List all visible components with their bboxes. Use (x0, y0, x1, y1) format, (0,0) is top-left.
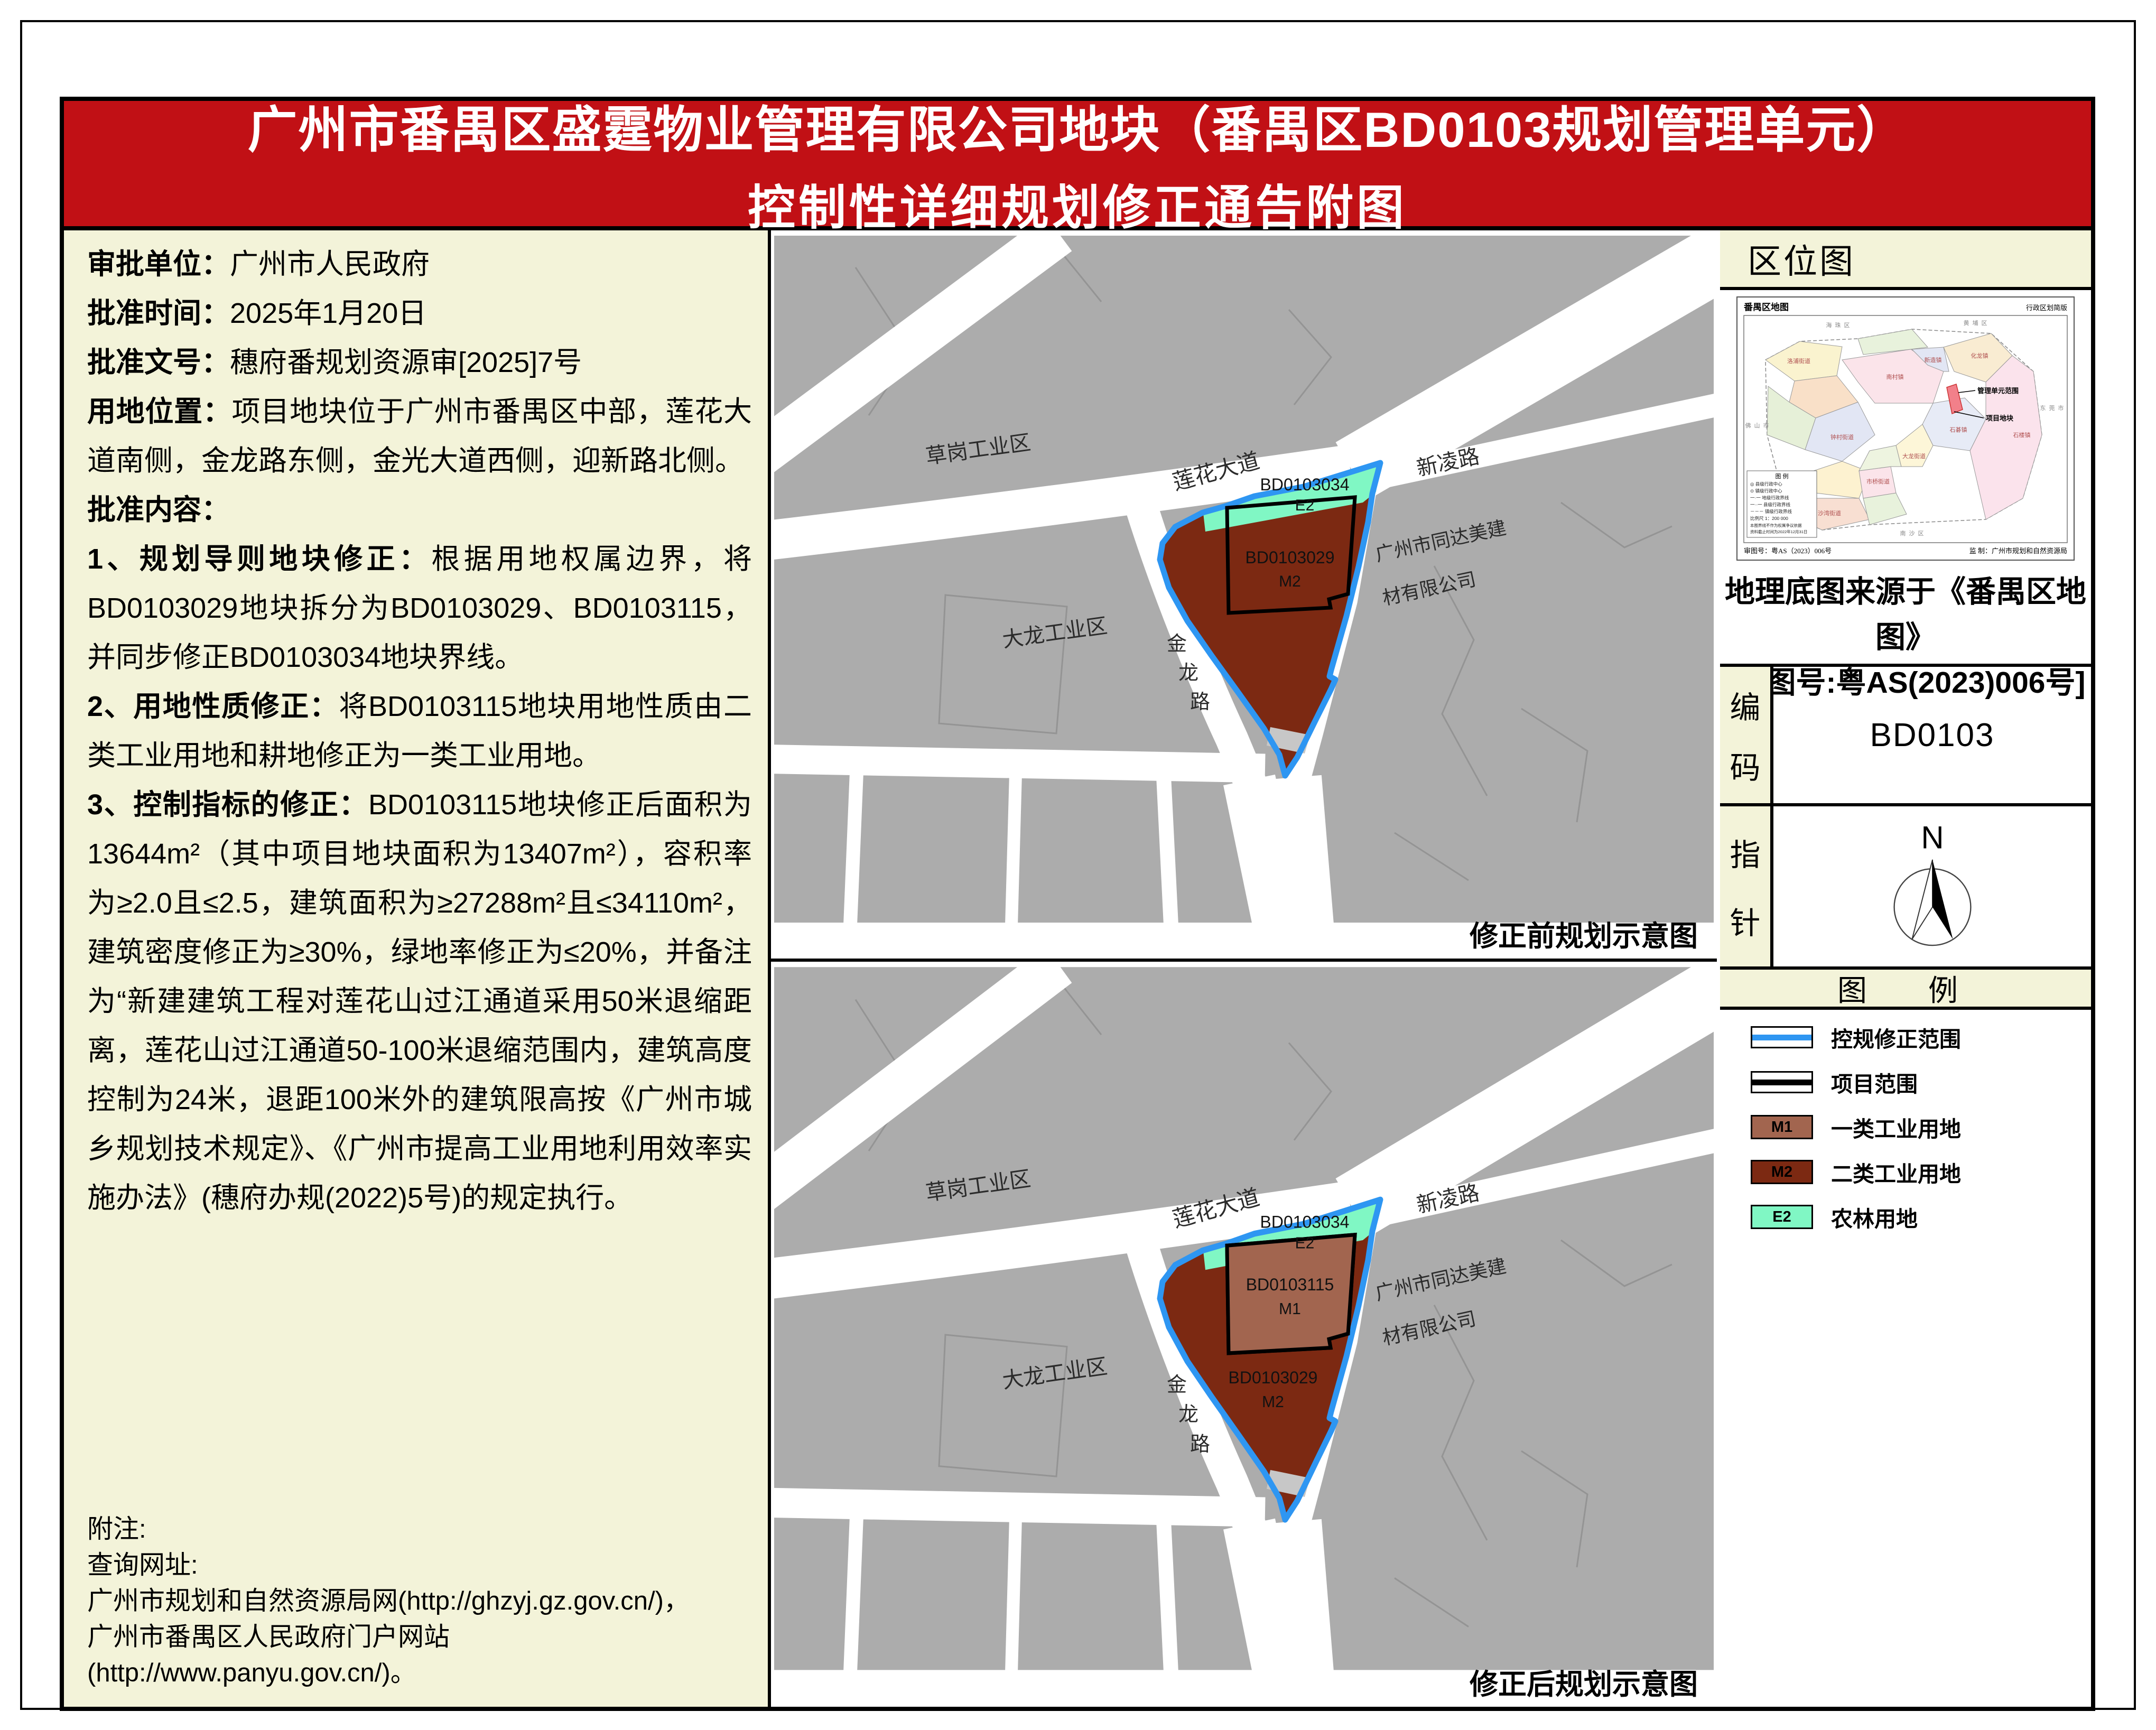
unit-code-section: 编 码 BD0103 (1720, 667, 2091, 806)
legend-item-project-scope: 项目范围 (1751, 1066, 2091, 1098)
north-arrow-icon: N (1874, 813, 1991, 961)
map-panels-column: 草岗工业区 大龙工业区 莲花大道 新凌路 金 龙 路 广州市同达美建 材有限公司 (771, 230, 1723, 1707)
location-map-section: 番禺区地图 行政区划简版 (1720, 290, 2091, 667)
note-line: 广州市规划和自然资源局网(http://ghzyj.gz.gov.cn/)， (87, 1583, 752, 1619)
svg-text:新造镇: 新造镇 (1925, 356, 1942, 364)
parcel-type-e2: E2 (1295, 1234, 1315, 1252)
blue-line-swatch-icon (1751, 1026, 1813, 1048)
panyu-district-inset-map: 番禺区地图 行政区划简版 (1736, 296, 2075, 561)
legend-item-e2: E2 农林用地 (1751, 1201, 2091, 1233)
map-after-revision: BD0103034 E2 BD0103115 M1 BD0103029 M2 修… (771, 962, 1717, 1707)
legend-item-revision-scope: 控规修正范围 (1751, 1021, 2091, 1053)
field-approval-doc: 批准文号：穗府番规划资源审[2025]7号 (87, 338, 752, 387)
svg-text:海珠区: 海珠区 (1826, 321, 1853, 329)
parcel-code-bd0103034: BD0103034 (1260, 475, 1349, 494)
black-line-swatch-icon (1751, 1071, 1813, 1093)
sidebar: 区位图 番禺区地图 行政区划简版 (1720, 230, 2091, 1707)
document-frame: 广州市番禺区盛霆物业管理有限公司地块（番禺区BD0103规划管理单元） 控制性详… (60, 97, 2095, 1711)
svg-text:⊙ 镇级行政中心: ⊙ 镇级行政中心 (1750, 488, 1782, 494)
svg-text:比例尺 1：200 000: 比例尺 1：200 000 (1750, 516, 1788, 521)
e2-swatch-icon: E2 (1751, 1205, 1813, 1229)
source-line1: 地理底图来源于《番禺区地图》 (1720, 569, 2091, 660)
svg-text:石碁镇: 石碁镇 (1950, 426, 1967, 433)
svg-text:－－－ 镇级行政界线: －－－ 镇级行政界线 (1750, 509, 1792, 514)
callout-unit-label: 管理单元范围 (1977, 387, 2019, 395)
svg-text:洛浦街道: 洛浦街道 (1787, 357, 1810, 365)
field-approval-unit: 审批单位：广州市人民政府 (87, 240, 752, 289)
approval-info-text: 审批单位：广州市人民政府 批准时间：2025年1月20日 批准文号：穗府番规划资… (87, 240, 752, 1223)
unit-code-value: BD0103 (1773, 667, 2091, 803)
svg-text:本图界线不作为权属争议依据: 本图界线不作为权属争议依据 (1750, 523, 1802, 528)
north-letter: N (1921, 820, 1944, 855)
parcel-type-m1: M1 (1279, 1300, 1301, 1318)
parcel-code-bd0103029: BD0103029 (1229, 1368, 1318, 1387)
svg-text:钟村街道: 钟村街道 (1830, 433, 1854, 441)
svg-text:资料截止时间为2022年12月31日: 资料截止时间为2022年12月31日 (1750, 529, 1807, 534)
approval-item-1: 1、规划导则地块修正：根据用地权属边界，将BD0103029地块拆分为BD010… (87, 535, 752, 682)
planning-notice-page: { "title": { "line1": "广州市番禺区盛霆物业管理有限公司地… (0, 0, 2156, 1730)
svg-text:◎ 县级行政中心: ◎ 县级行政中心 (1750, 481, 1782, 487)
caption-before-revision: 修正前规划示意图 (1470, 913, 1698, 954)
field-approval-date: 批准时间：2025年1月20日 (87, 289, 752, 338)
svg-text:沙湾街道: 沙湾街道 (1818, 509, 1841, 517)
compass-section: 指 针 N (1720, 806, 2091, 970)
approval-info-panel: 审批单位：广州市人民政府 批准时间：2025年1月20日 批准文号：穗府番规划资… (64, 230, 771, 1707)
note-line: 附注: (87, 1511, 752, 1547)
legend-header: 图 例 (1720, 970, 2091, 1010)
svg-text:图 例: 图 例 (1775, 472, 1788, 480)
inset-mini-legend: 图 例 ◎ 县级行政中心 ⊙ 镇级行政中心 一·一 地级行政界线 一··一 县级… (1747, 471, 1817, 537)
note-line: 查询网址: (87, 1547, 752, 1583)
svg-text:化龙镇: 化龙镇 (1971, 352, 1988, 359)
parcel-code-bd0103115: BD0103115 (1246, 1275, 1334, 1294)
caption-after-revision: 修正后规划示意图 (1470, 1661, 1698, 1703)
map-before-revision: BD0103034 E2 BD0103029 M2 修正前规划示意图 (771, 230, 1717, 962)
legend-title: 图 例 (1837, 967, 1974, 1010)
parcel-type-m2: M2 (1262, 1393, 1284, 1411)
field-location: 用地位置：项目地块位于广州市番禺区中部，莲花大道南侧，金龙路东侧，金光大道西侧，… (87, 387, 752, 486)
svg-text:东莞市: 东莞市 (2040, 404, 2067, 412)
inset-producer: 监 制：广州市规划和自然资源局 (1969, 547, 2067, 555)
page-title: 广州市番禺区盛霆物业管理有限公司地块（番禺区BD0103规划管理单元） (248, 90, 1908, 162)
page-subtitle: 控制性详细规划修正通告附图 (748, 169, 1407, 238)
compass-label: 指 针 (1720, 806, 1773, 966)
field-content-head: 批准内容： (87, 486, 752, 535)
parcel-code-bd0103029: BD0103029 (1245, 548, 1334, 567)
approval-item-2: 2、用地性质修正：将BD0103115地块用地性质由二类工业用地和耕地修正为一类… (87, 682, 752, 780)
inset-title: 番禺区地图 (1743, 302, 1789, 312)
legend-list: 控规修正范围 项目范围 M1 一类工业用地 M2 二类工业用地 E2 农林用地 (1720, 1010, 2091, 1707)
svg-text:石楼镇: 石楼镇 (2013, 431, 2031, 439)
location-map-header: 区位图 (1720, 230, 2091, 290)
parcel-type-e2: E2 (1295, 497, 1315, 514)
title-banner: 广州市番禺区盛霆物业管理有限公司地块（番禺区BD0103规划管理单元） 控制性详… (64, 101, 2091, 230)
footnotes: 附注: 查询网址: 广州市规划和自然资源局网(http://ghzyj.gz.g… (87, 1511, 752, 1691)
parcel-type-m2: M2 (1279, 573, 1301, 590)
svg-text:南沙区: 南沙区 (1900, 530, 1927, 537)
svg-text:市桥街道: 市桥街道 (1866, 478, 1890, 485)
m1-swatch-icon: M1 (1751, 1115, 1813, 1139)
location-map-title: 区位图 (1748, 235, 1855, 283)
m2-swatch-icon: M2 (1751, 1160, 1813, 1184)
approval-item-3: 3、控制指标的修正：BD0103115地块修正后面积为13644m²（其中项目地… (87, 780, 752, 1223)
svg-text:一·一 地级行政界线: 一·一 地级行政界线 (1750, 495, 1789, 500)
svg-text:佛山市: 佛山市 (1745, 422, 1772, 429)
svg-text:一··一 县级行政界线: 一··一 县级行政界线 (1750, 502, 1791, 507)
svg-text:黄埔区: 黄埔区 (1964, 319, 1991, 327)
legend-item-m2: M2 二类工业用地 (1751, 1156, 2091, 1188)
svg-text:大龙街道: 大龙街道 (1902, 452, 1926, 460)
code-label: 编 码 (1720, 667, 1773, 803)
svg-text:南村镇: 南村镇 (1886, 373, 1904, 380)
inset-subtitle: 行政区划简版 (2026, 304, 2067, 312)
legend-item-m1: M1 一类工业用地 (1751, 1111, 2091, 1143)
note-line: 广州市番禺区人民政府门户网站(http://www.panyu.gov.cn/)… (87, 1619, 752, 1691)
parcel-code-bd0103034: BD0103034 (1260, 1212, 1350, 1231)
callout-site-label: 项目地块 (1986, 414, 2014, 422)
inset-approval-no: 审图号：粤AS（2023）006号 (1744, 547, 1832, 555)
